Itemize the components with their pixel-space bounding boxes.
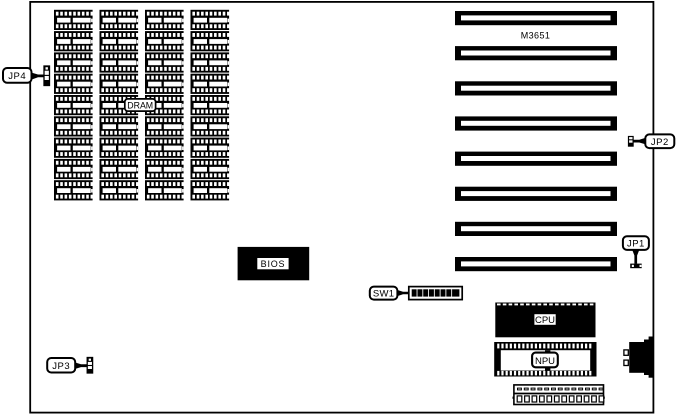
svg-text:JP3: JP3	[52, 361, 70, 372]
svg-text:JP2: JP2	[651, 137, 669, 148]
svg-text:JP1: JP1	[627, 239, 645, 250]
svg-text:DRAM: DRAM	[127, 100, 153, 110]
svg-text:M3651: M3651	[521, 30, 551, 40]
svg-text:JP4: JP4	[8, 71, 26, 82]
svg-text:NPU: NPU	[535, 356, 555, 367]
svg-text:CPU: CPU	[535, 315, 555, 326]
svg-text:SW1: SW1	[373, 289, 395, 300]
svg-text:BIOS: BIOS	[261, 259, 286, 269]
